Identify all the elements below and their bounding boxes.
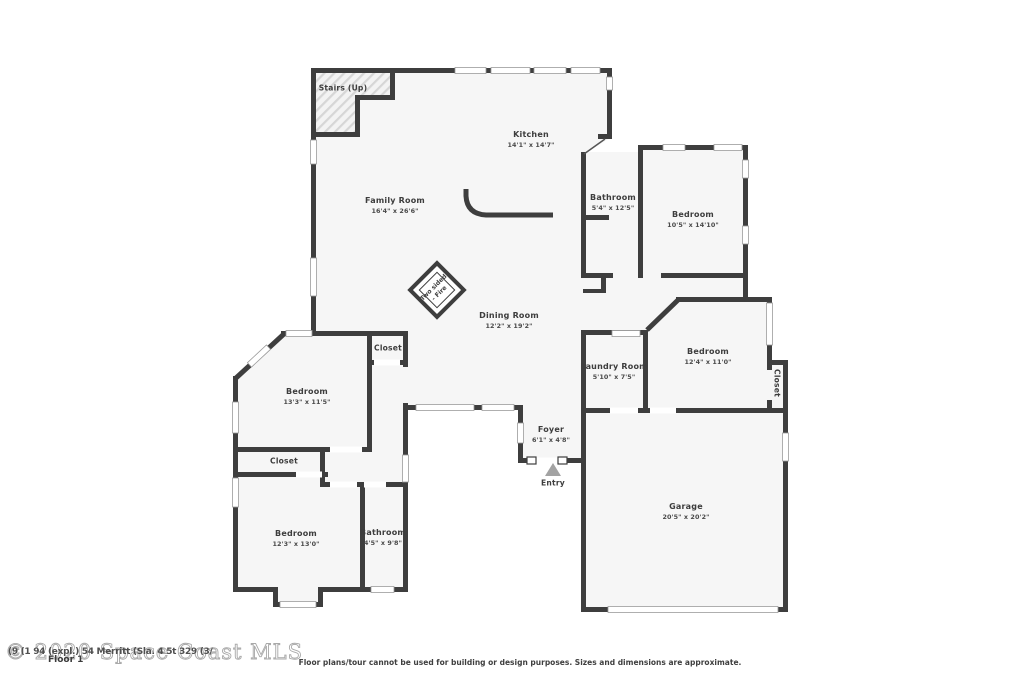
room-label-garage: Garage 20'5" x 20'2"	[662, 502, 709, 521]
room-label-closet-hall: Closet	[374, 343, 402, 352]
room-name: Bathroom	[360, 528, 406, 538]
room-name: Stairs (Up)	[319, 83, 367, 92]
entry-arrow-icon	[545, 463, 561, 476]
room-name: Closet	[374, 343, 402, 352]
room-name: Bedroom	[283, 387, 330, 397]
room-name: Family Room	[365, 196, 425, 206]
room-dims: 14'1" x 14'7"	[507, 140, 554, 148]
floorplan-page: Stairs (Up) Kitchen 14'1" x 14'7" Family…	[0, 0, 1024, 683]
room-label-dining-room: Dining Room 12'2" x 19'2"	[479, 311, 539, 330]
room-name: Entry	[541, 478, 565, 487]
room-dims: 5'10" x 7'5"	[580, 372, 647, 380]
room-label-stairs: Stairs (Up)	[319, 83, 367, 92]
room-label-kitchen: Kitchen 14'1" x 14'7"	[507, 130, 554, 149]
room-label-bedroom-ne: Bedroom 10'5" x 14'10"	[667, 210, 719, 229]
room-name: Bathroom	[590, 193, 636, 203]
room-dims: 4'5" x 9'8"	[360, 538, 406, 546]
room-name: Closet	[772, 369, 781, 397]
room-name: Bedroom	[272, 529, 319, 539]
room-label-closet-w: Closet	[270, 456, 298, 465]
room-name: Bedroom	[667, 210, 719, 220]
room-dims: 12'3" x 13'0"	[272, 539, 319, 547]
room-dims: 12'2" x 19'2"	[479, 321, 539, 329]
room-label-foyer: Foyer 6'1" x 4'8"	[532, 425, 570, 444]
room-dims: 5'4" x 12'5"	[590, 203, 636, 211]
floorplan-drawing	[0, 0, 1024, 683]
room-label-closet-e: Closet	[772, 369, 781, 397]
room-label-family-room: Family Room 16'4" x 26'6"	[365, 196, 425, 215]
room-label-bedroom-e: Bedroom 12'4" x 11'0"	[684, 347, 731, 366]
room-label-laundry-room: Laundry Room 5'10" x 7'5"	[580, 362, 647, 381]
entry-label: Entry	[541, 478, 565, 487]
room-dims: 12'4" x 11'0"	[684, 357, 731, 365]
room-label-bathroom-sw: Bathroom 4'5" x 9'8"	[360, 528, 406, 547]
room-name: Laundry Room	[580, 362, 647, 372]
room-name: Bedroom	[684, 347, 731, 357]
room-dims: 13'3" x 11'5"	[283, 397, 330, 405]
room-label-bedroom-sw: Bedroom 12'3" x 13'0"	[272, 529, 319, 548]
watermark-overlay-text: (9 (1 94 (expl.) 54 Merritt (Sla. 4 5t 3…	[8, 647, 213, 657]
room-name: Kitchen	[507, 130, 554, 140]
room-dims: 20'5" x 20'2"	[662, 512, 709, 520]
room-dims: 10'5" x 14'10"	[667, 220, 719, 228]
room-name: Foyer	[532, 425, 570, 435]
room-label-bathroom-ne: Bathroom 5'4" x 12'5"	[590, 193, 636, 212]
room-name: Closet	[270, 456, 298, 465]
room-name: Garage	[662, 502, 709, 512]
floor-number-label: Floor 1	[48, 655, 83, 665]
room-dims: 6'1" x 4'8"	[532, 435, 570, 443]
room-dims: 16'4" x 26'6"	[365, 206, 425, 214]
room-name: Dining Room	[479, 311, 539, 321]
disclaimer-text: Floor plans/tour cannot be used for buil…	[292, 658, 748, 667]
room-label-bedroom-w: Bedroom 13'3" x 11'5"	[283, 387, 330, 406]
